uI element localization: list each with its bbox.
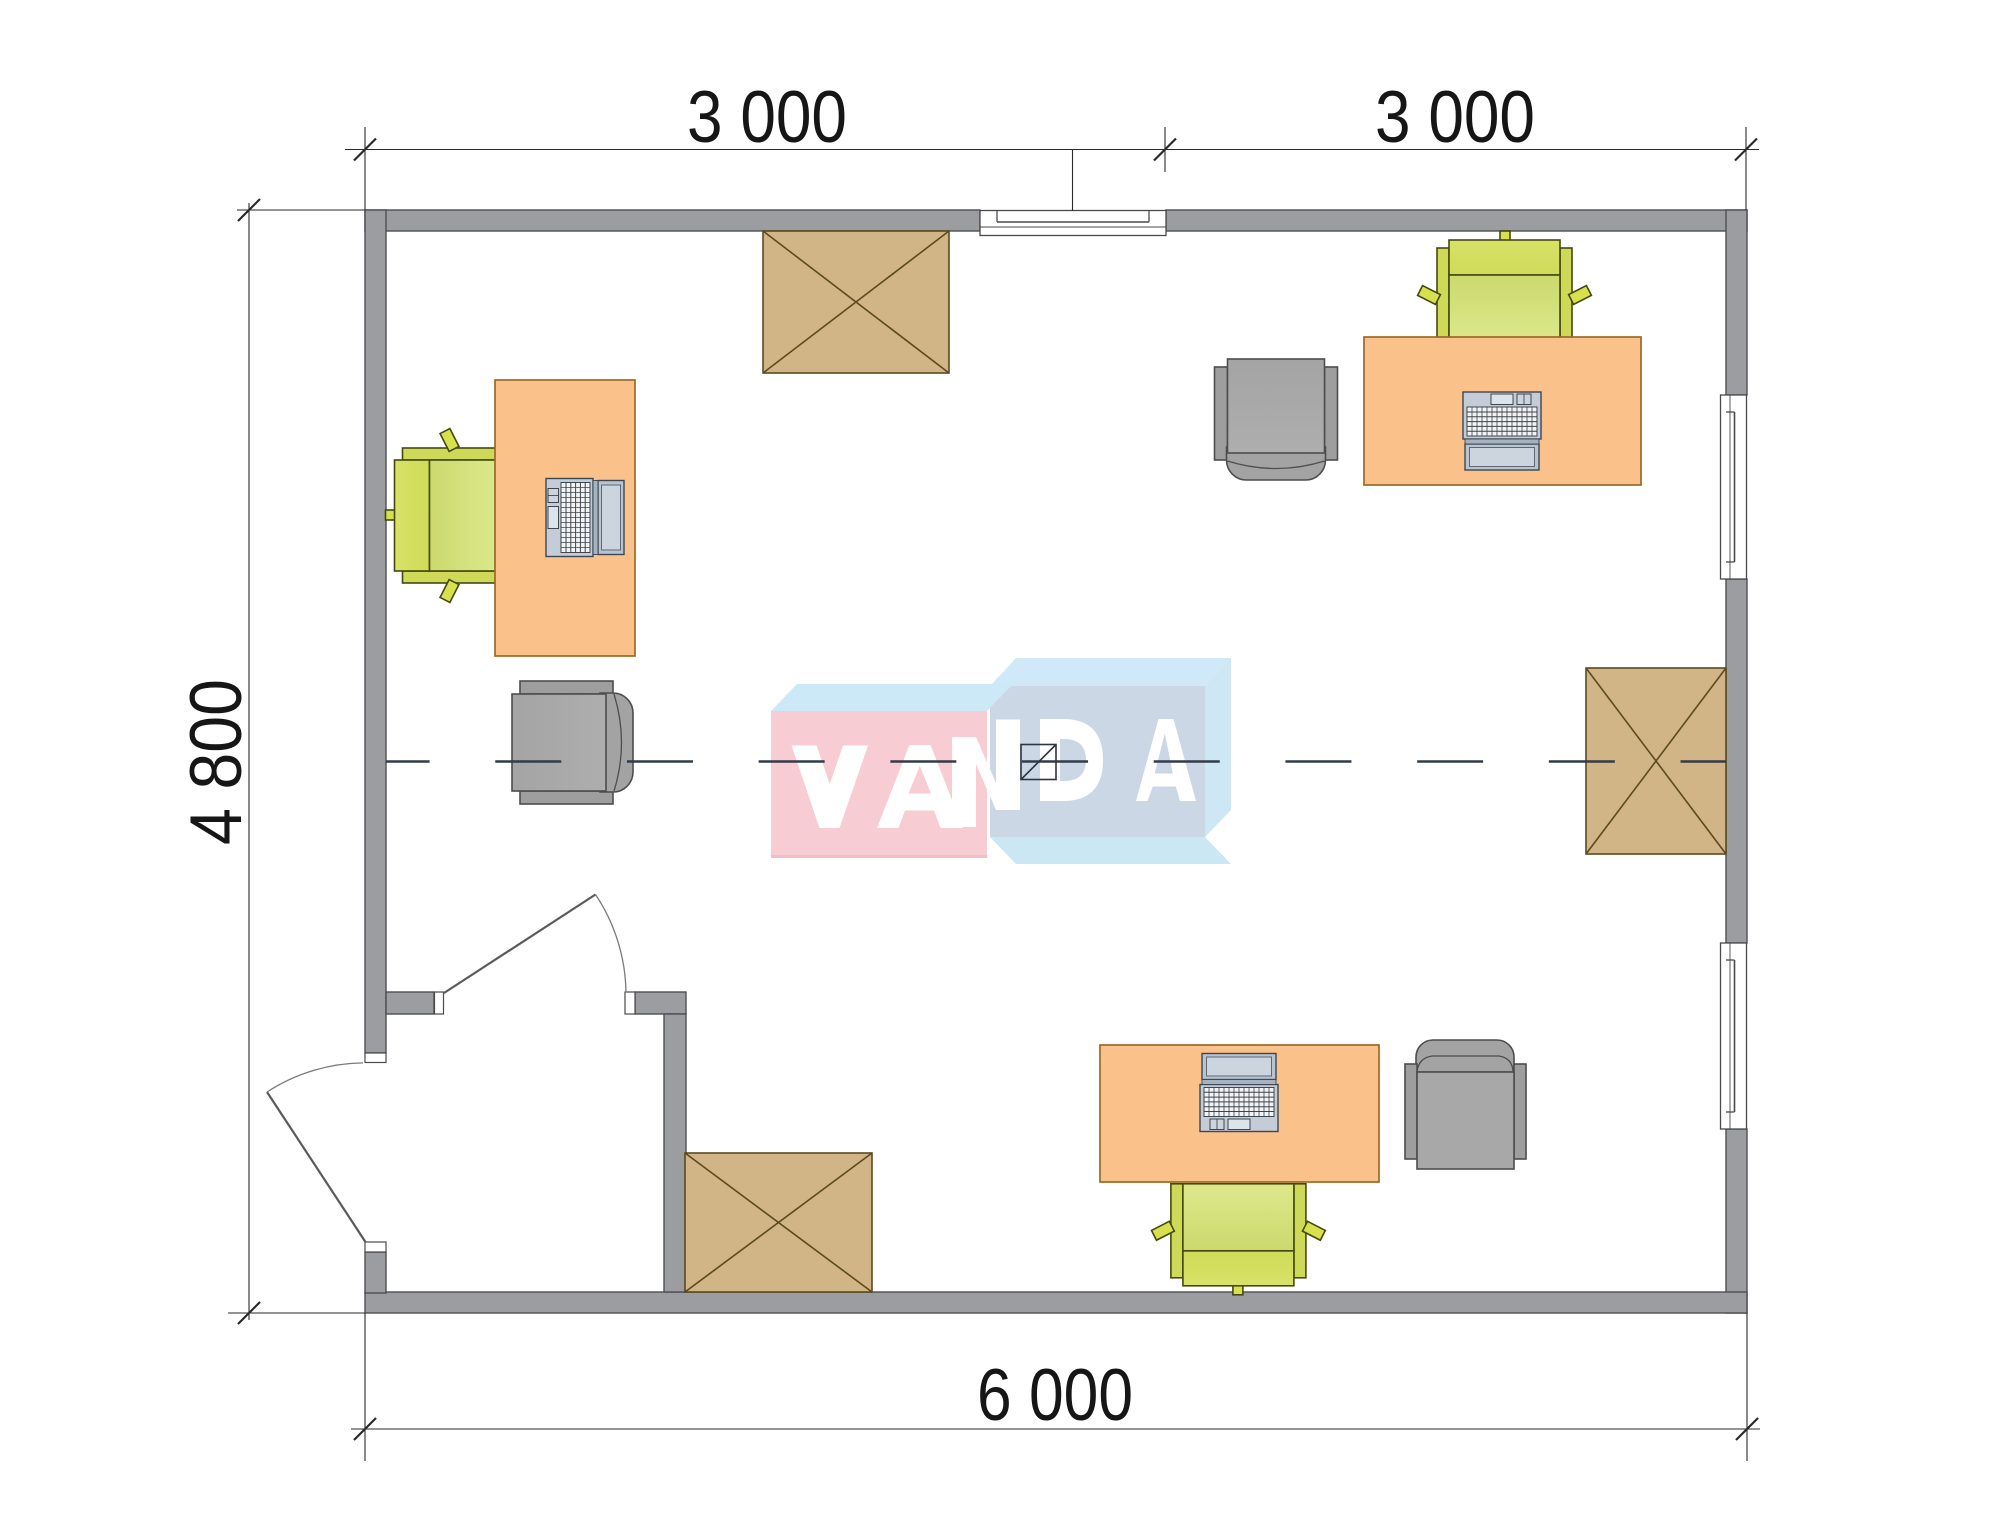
svg-text:6 000: 6 000 <box>977 1355 1133 1436</box>
svg-text:3 000: 3 000 <box>1375 77 1535 158</box>
svg-text:3 000: 3 000 <box>687 77 847 158</box>
svg-text:4 800: 4 800 <box>176 679 257 845</box>
